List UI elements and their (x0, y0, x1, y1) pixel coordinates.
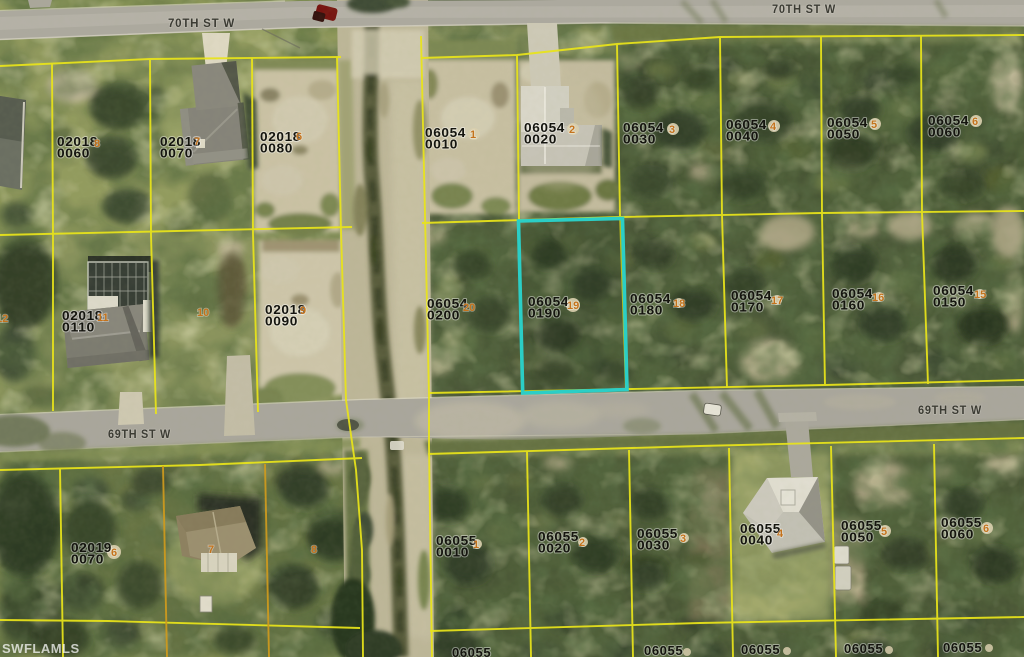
svg-text:3: 3 (680, 533, 686, 545)
svg-text:6: 6 (111, 547, 117, 559)
svg-text:5: 5 (871, 119, 877, 131)
svg-text:8: 8 (311, 544, 317, 556)
svg-text:1: 1 (473, 539, 479, 551)
svg-text:7: 7 (194, 136, 200, 148)
svg-text:7: 7 (208, 544, 214, 556)
svg-text:70TH ST W: 70TH ST W (772, 2, 836, 16)
svg-text:8: 8 (94, 138, 100, 150)
svg-text:2: 2 (579, 537, 585, 549)
svg-text:69TH ST W: 69TH ST W (108, 427, 171, 441)
svg-text:10: 10 (197, 307, 209, 319)
svg-text:5: 5 (881, 526, 887, 538)
svg-text:06055: 06055 (844, 641, 883, 656)
svg-text:3: 3 (669, 124, 675, 136)
svg-text:70TH ST W: 70TH ST W (168, 16, 235, 30)
svg-text:4: 4 (770, 121, 777, 133)
svg-text:15: 15 (974, 289, 986, 301)
svg-text:17: 17 (771, 295, 783, 307)
svg-text:2: 2 (569, 124, 575, 136)
svg-text:1: 1 (470, 129, 476, 141)
svg-text:06055: 06055 (741, 642, 780, 657)
svg-text:6: 6 (296, 131, 302, 143)
svg-text:20: 20 (463, 302, 475, 314)
svg-text:06055: 06055 (644, 643, 683, 657)
svg-text:19: 19 (567, 300, 579, 312)
svg-text:69TH ST W: 69TH ST W (918, 403, 982, 417)
svg-text:6: 6 (983, 523, 989, 535)
svg-text:4: 4 (777, 528, 784, 540)
svg-text:06055: 06055 (452, 645, 491, 657)
svg-text:18: 18 (673, 298, 685, 310)
svg-text:6: 6 (972, 116, 978, 128)
svg-text:SWFLAMLS: SWFLAMLS (2, 641, 80, 656)
svg-text:11: 11 (97, 312, 109, 324)
svg-text:12: 12 (0, 313, 8, 325)
svg-text:06055: 06055 (943, 640, 982, 655)
svg-text:9: 9 (300, 305, 306, 317)
svg-text:16: 16 (872, 292, 884, 304)
